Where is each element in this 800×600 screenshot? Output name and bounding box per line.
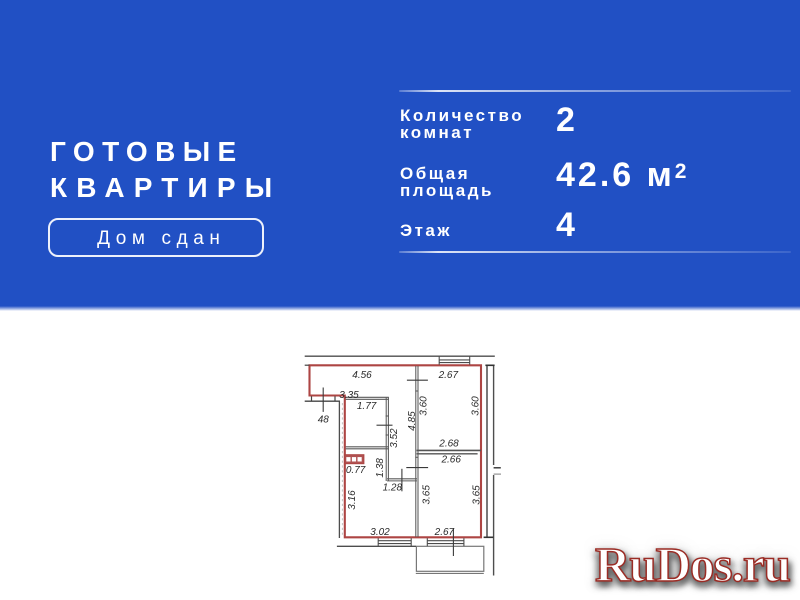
svg-text:4.56: 4.56 [352,370,372,381]
svg-text:48: 48 [318,414,330,425]
svg-text:2.68: 2.68 [438,438,459,449]
svg-text:3.65: 3.65 [421,485,432,505]
svg-text:0.77: 0.77 [346,465,366,476]
svg-text:3.02: 3.02 [370,527,390,538]
svg-text:3.65: 3.65 [471,485,482,505]
svg-text:1.28: 1.28 [383,483,403,494]
svg-text:2.67: 2.67 [434,527,455,538]
svg-text:3.35: 3.35 [339,390,359,401]
svg-text:1.77: 1.77 [357,401,377,412]
svg-text:4.85: 4.85 [407,411,418,431]
svg-text:2.67: 2.67 [438,370,459,381]
svg-text:3.52: 3.52 [389,428,400,448]
svg-text:2.66: 2.66 [440,454,461,465]
svg-text:3.60: 3.60 [419,396,430,416]
svg-text:3.60: 3.60 [471,396,482,416]
svg-text:1.38: 1.38 [375,458,386,478]
svg-text:3.16: 3.16 [347,490,358,510]
